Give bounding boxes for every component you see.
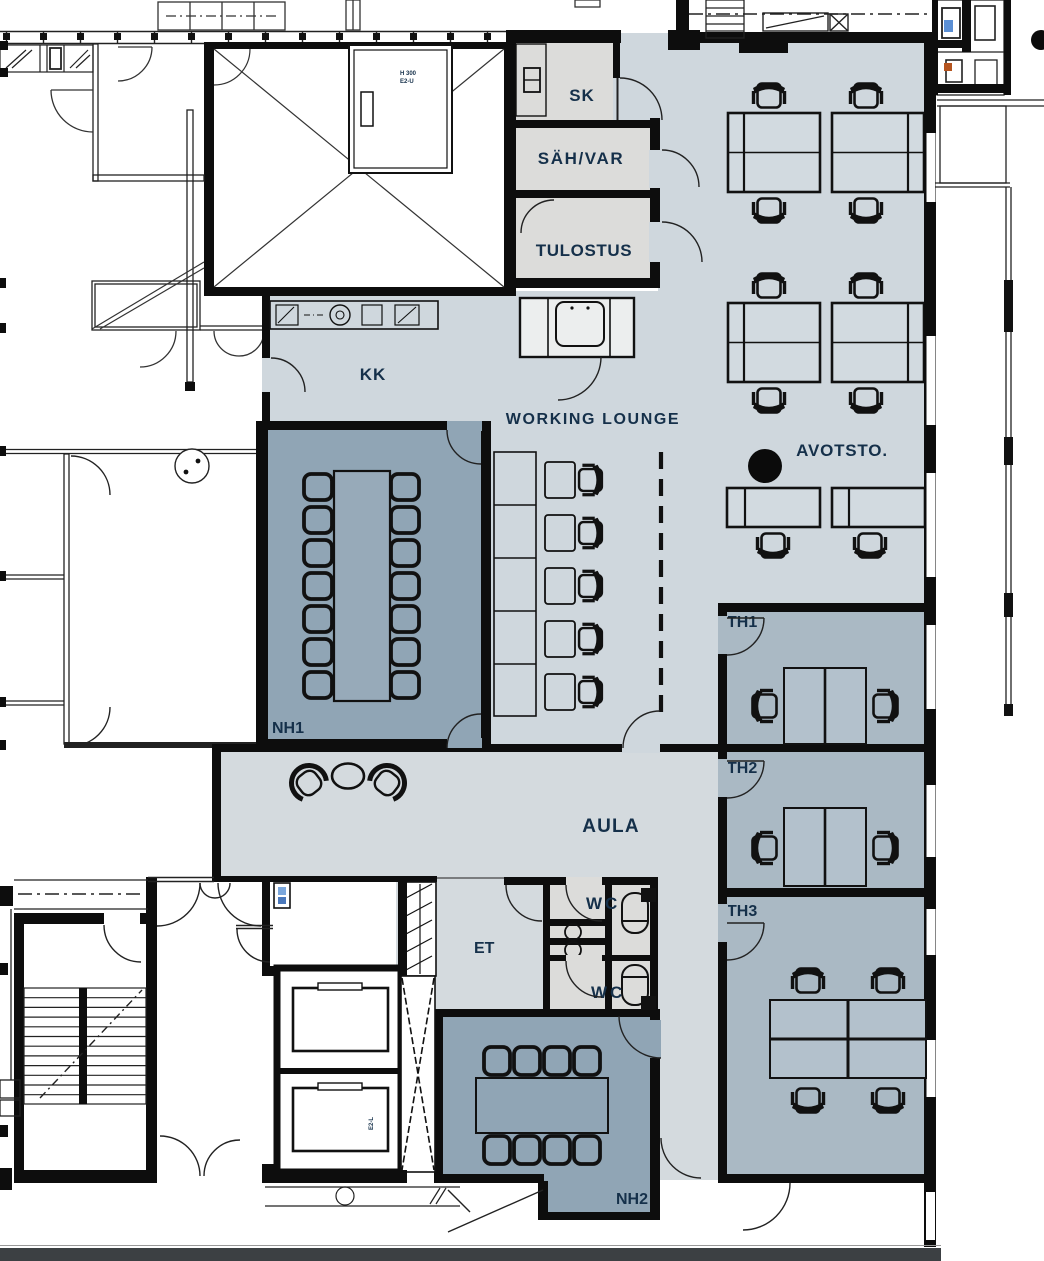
svg-text:NH2: NH2 (616, 1191, 648, 1208)
svg-text:NH1: NH1 (272, 720, 304, 737)
svg-text:KK: KK (360, 365, 387, 384)
svg-text:AVOTSTO.: AVOTSTO. (796, 441, 888, 460)
svg-text:TH1: TH1 (727, 614, 757, 631)
svg-text:ET: ET (474, 940, 495, 957)
svg-text:TH3: TH3 (727, 903, 757, 920)
svg-text:WC: WC (586, 894, 620, 913)
svg-text:SK: SK (569, 86, 595, 105)
svg-text:TULOSTUS: TULOSTUS (536, 241, 632, 260)
svg-text:WORKING LOUNGE: WORKING LOUNGE (506, 411, 680, 428)
svg-text:E2-U: E2-U (400, 79, 414, 85)
svg-text:TH2: TH2 (727, 760, 757, 777)
svg-text:AULA: AULA (582, 816, 640, 837)
svg-text:WC: WC (591, 983, 625, 1002)
svg-text:H 300: H 300 (400, 71, 417, 77)
svg-text:SÄH/VAR: SÄH/VAR (538, 149, 624, 168)
svg-text:E2-L: E2-L (369, 1117, 375, 1130)
